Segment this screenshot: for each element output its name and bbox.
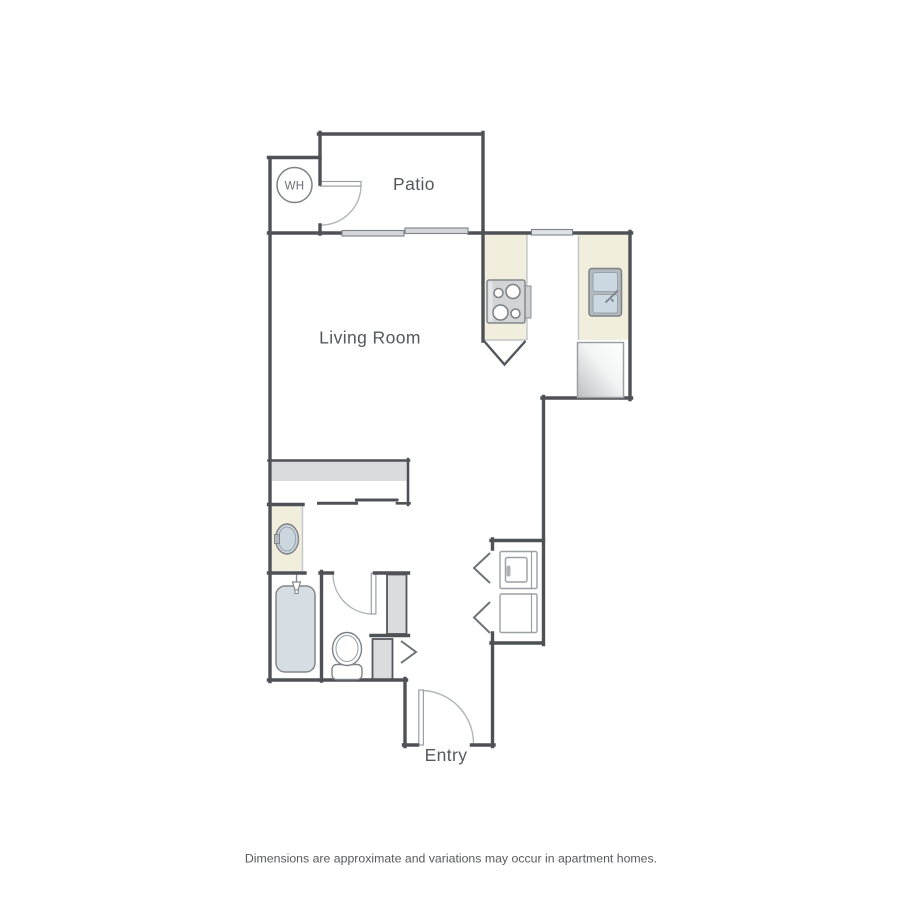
dryer-door-handle: [507, 566, 511, 577]
stove-edge-strip: [489, 282, 493, 322]
toilet-tank: [332, 665, 362, 680]
shower-head-tip: [295, 590, 298, 594]
wall-chase-upper: [387, 575, 407, 635]
wall-chase-lower: [373, 639, 393, 680]
entry-label: Entry: [425, 745, 468, 765]
bifold-door-top: [474, 553, 490, 583]
vanity-sink: [275, 524, 299, 554]
sliding-door-panel-left: [342, 231, 404, 237]
floor-plan-drawing: WH: [0, 0, 900, 900]
burner-large-1: [506, 285, 520, 299]
entry-door-leaf: [419, 690, 424, 745]
patio-door-swing-arc: [321, 186, 361, 225]
patio-door: [320, 182, 361, 226]
bathroom-door-swing-arc: [333, 575, 373, 615]
bathroom-door: [333, 573, 376, 614]
closet-shelf-band: [272, 461, 407, 481]
vanity-faucet: [275, 535, 280, 544]
stove: [487, 280, 531, 323]
peninsula-angled-end: [484, 341, 526, 365]
toilet: [332, 633, 362, 680]
water-heater: WH: [277, 168, 312, 203]
entry-door: [419, 690, 474, 745]
bathtub-shower: [276, 575, 315, 673]
burner-large-2: [493, 305, 508, 320]
sliding-door-panel-right: [405, 228, 468, 234]
patio-label: Patio: [393, 174, 435, 194]
burner-small-2: [511, 309, 520, 318]
coat-closet-door: [401, 641, 416, 663]
patio-door-leaf: [320, 182, 361, 187]
sink-basin-bottom: [593, 295, 618, 314]
floor-plan-page: WH: [0, 0, 900, 900]
water-heater-label: WH: [285, 181, 305, 193]
burner-small-1: [494, 289, 503, 298]
toilet-bowl: [333, 633, 362, 666]
sliding-glass-door: [342, 228, 468, 236]
kitchen-peninsula-end: [484, 341, 526, 365]
refrigerator: [578, 343, 624, 398]
kitchen-sink: [589, 269, 622, 317]
closet-bypass-door-panels: [317, 500, 399, 503]
entry-door-swing-arc: [424, 691, 474, 745]
bathroom-door-leaf: [371, 573, 376, 614]
sink-basin-top: [593, 273, 618, 292]
stacked-washer-dryer: [500, 552, 537, 633]
kitchen-window: [532, 230, 573, 236]
disclaimer-text: Dimensions are approximate and variation…: [245, 852, 657, 866]
living-room-label: Living Room: [319, 328, 421, 348]
bathtub: [276, 586, 315, 672]
bifold-door-bottom: [474, 602, 490, 633]
laundry-closet-bifold-doors: [474, 553, 490, 633]
